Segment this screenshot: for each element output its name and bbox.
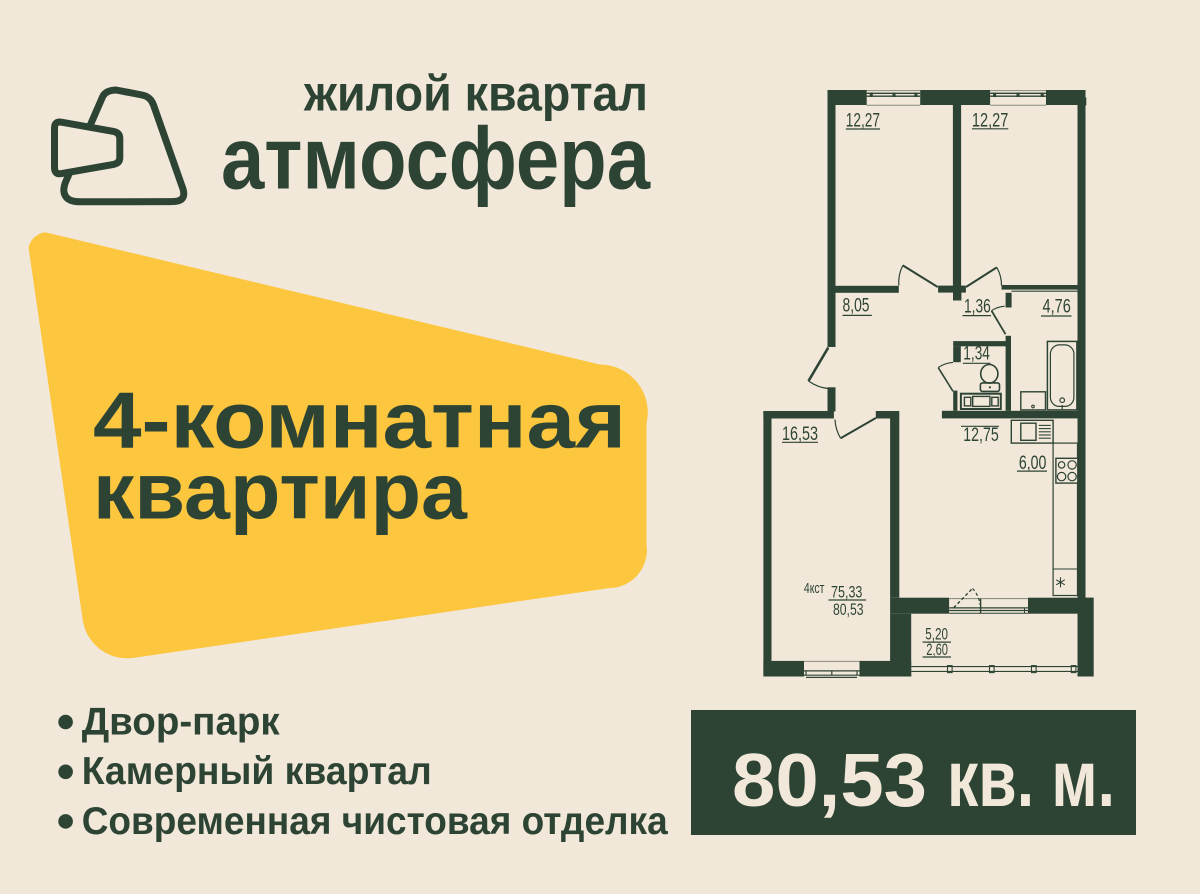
svg-text:4кст: 4кст [804, 580, 825, 597]
svg-text:1,34: 1,34 [963, 344, 990, 365]
svg-text:1,36: 1,36 [964, 297, 991, 318]
svg-text:80,53: 80,53 [732, 738, 927, 822]
svg-text:80,53: 80,53 [833, 601, 864, 619]
svg-text:12,75: 12,75 [963, 425, 998, 446]
svg-text:4,76: 4,76 [1043, 297, 1071, 318]
svg-text:Современная чистовая отделка: Современная чистовая отделка [82, 800, 668, 843]
svg-text:атмосфера: атмосфера [221, 109, 651, 208]
svg-text:Камерный квартал: Камерный квартал [82, 750, 432, 793]
svg-text:кв. м.: кв. м. [947, 734, 1115, 823]
svg-text:8,05: 8,05 [843, 296, 870, 317]
svg-text:2,60: 2,60 [926, 641, 948, 659]
svg-text:75,33: 75,33 [831, 583, 862, 601]
svg-text:Двор-парк: Двор-парк [82, 700, 280, 743]
svg-text:квартира: квартира [93, 447, 468, 536]
